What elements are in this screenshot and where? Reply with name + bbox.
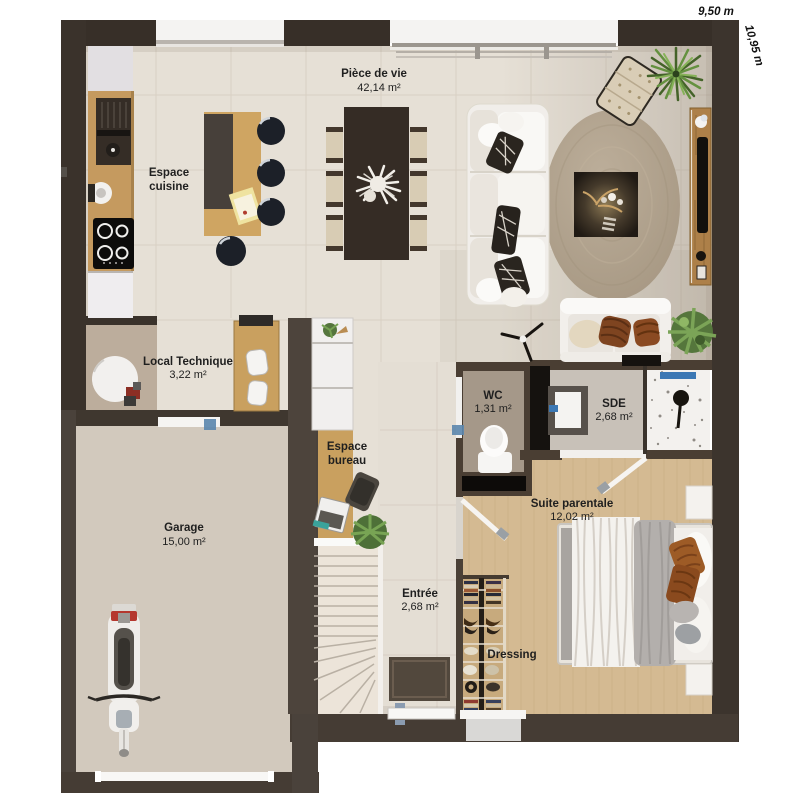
svg-text:bureau: bureau	[328, 455, 366, 467]
svg-text:WC: WC	[483, 390, 502, 402]
svg-text:Espace: Espace	[327, 441, 367, 453]
svg-text:Entrée: Entrée	[402, 588, 438, 600]
svg-text:15,00 m²: 15,00 m²	[162, 536, 206, 548]
svg-text:1,31 m²: 1,31 m²	[474, 403, 512, 415]
svg-text:Suite parentale: Suite parentale	[531, 498, 613, 510]
svg-text:Dressing: Dressing	[487, 649, 536, 661]
svg-text:Local Technique: Local Technique	[143, 356, 233, 368]
svg-text:2,68 m²: 2,68 m²	[401, 601, 439, 613]
svg-text:9,50 m: 9,50 m	[698, 6, 734, 18]
svg-text:42,14 m²: 42,14 m²	[357, 82, 401, 94]
svg-text:SDE: SDE	[602, 398, 626, 410]
svg-text:3,22 m²: 3,22 m²	[169, 369, 207, 381]
svg-text:Espace: Espace	[149, 167, 189, 179]
svg-text:Garage: Garage	[164, 522, 204, 534]
svg-text:cuisine: cuisine	[149, 181, 189, 193]
svg-text:12,02 m²: 12,02 m²	[550, 511, 594, 523]
svg-text:2,68 m²: 2,68 m²	[595, 411, 633, 423]
svg-text:Pièce de vie: Pièce de vie	[341, 68, 407, 80]
